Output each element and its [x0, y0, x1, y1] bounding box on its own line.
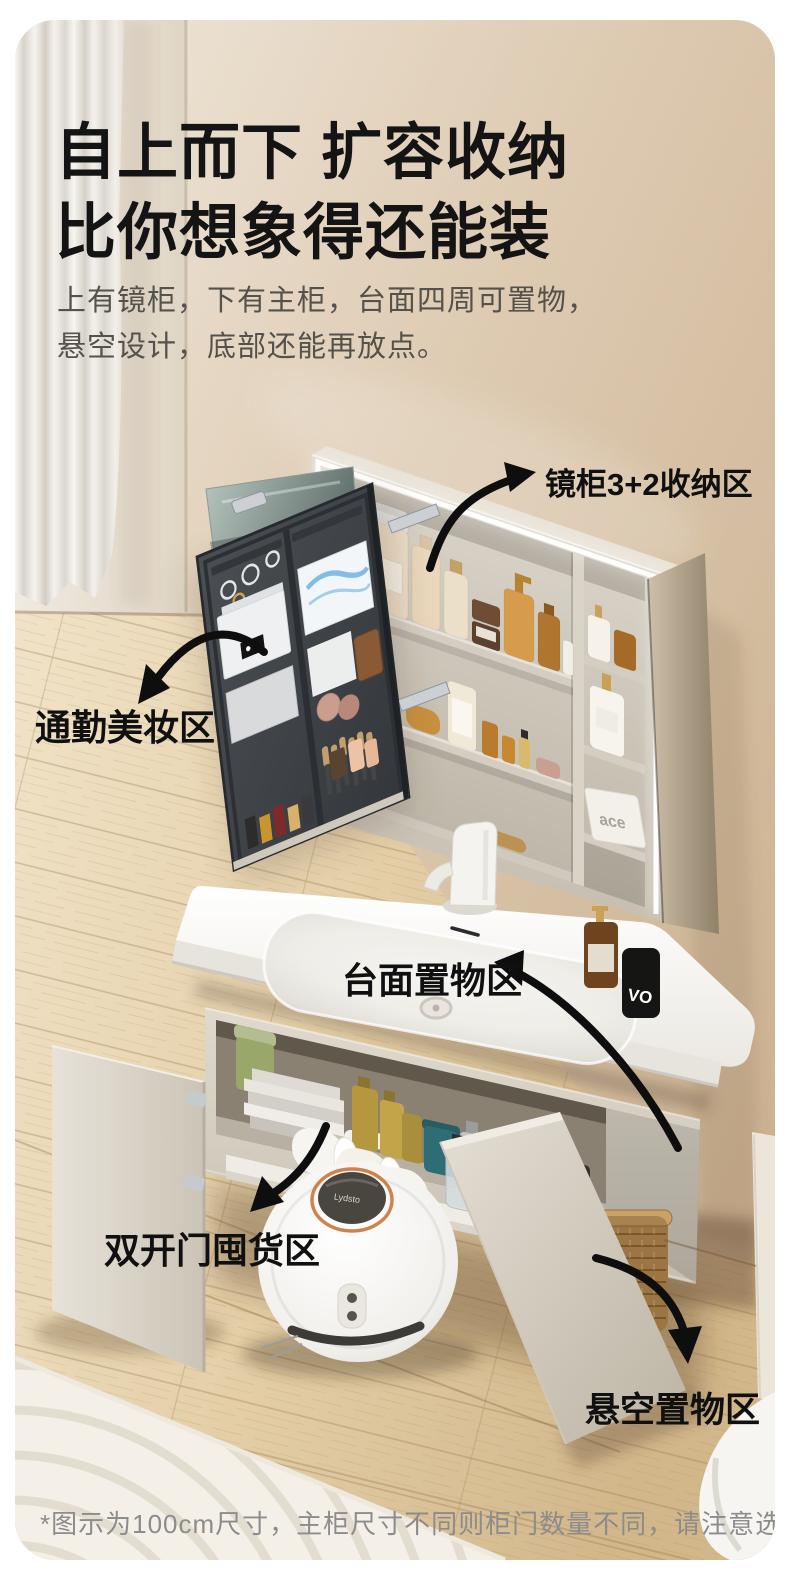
subtitle-line-2: 悬空设计，底部还能再放点。 [57, 324, 597, 370]
label-countertop-zone: 台面置物区 [342, 952, 522, 1004]
label-mirror-cabinet-zone: 镜柜3+2收纳区 [545, 459, 753, 504]
label-floating-zone: 悬空置物区 [585, 1382, 760, 1433]
subtitle-line-1: 上有镜柜，下有主柜，台面四周可置物， [57, 278, 597, 324]
page-subtitle: 上有镜柜，下有主柜，台面四周可置物， 悬空设计，底部还能再放点。 [57, 278, 597, 370]
hero-photo: ace [15, 20, 775, 1560]
title-line-1: 自上而下 扩容收纳 [55, 112, 569, 192]
black-bottle-text: VO [626, 985, 653, 1008]
title-line-2: 比你想象得还能装 [55, 192, 569, 272]
size-disclaimer: *图示为100cm尺寸，主柜尺寸不同则柜门数量不同，请注意选购 [40, 1504, 775, 1541]
label-makeup-zone: 通勤美妆区 [35, 699, 215, 751]
leather-wallet [354, 628, 384, 682]
promo-page: ace [0, 0, 790, 1595]
black-soap-bottle [622, 948, 660, 1018]
base-door-left [35, 1046, 225, 1372]
label-double-door-zone: 双开门囤货区 [104, 1222, 320, 1274]
page-title: 自上而下 扩容收纳 比你想象得还能装 [55, 112, 569, 272]
